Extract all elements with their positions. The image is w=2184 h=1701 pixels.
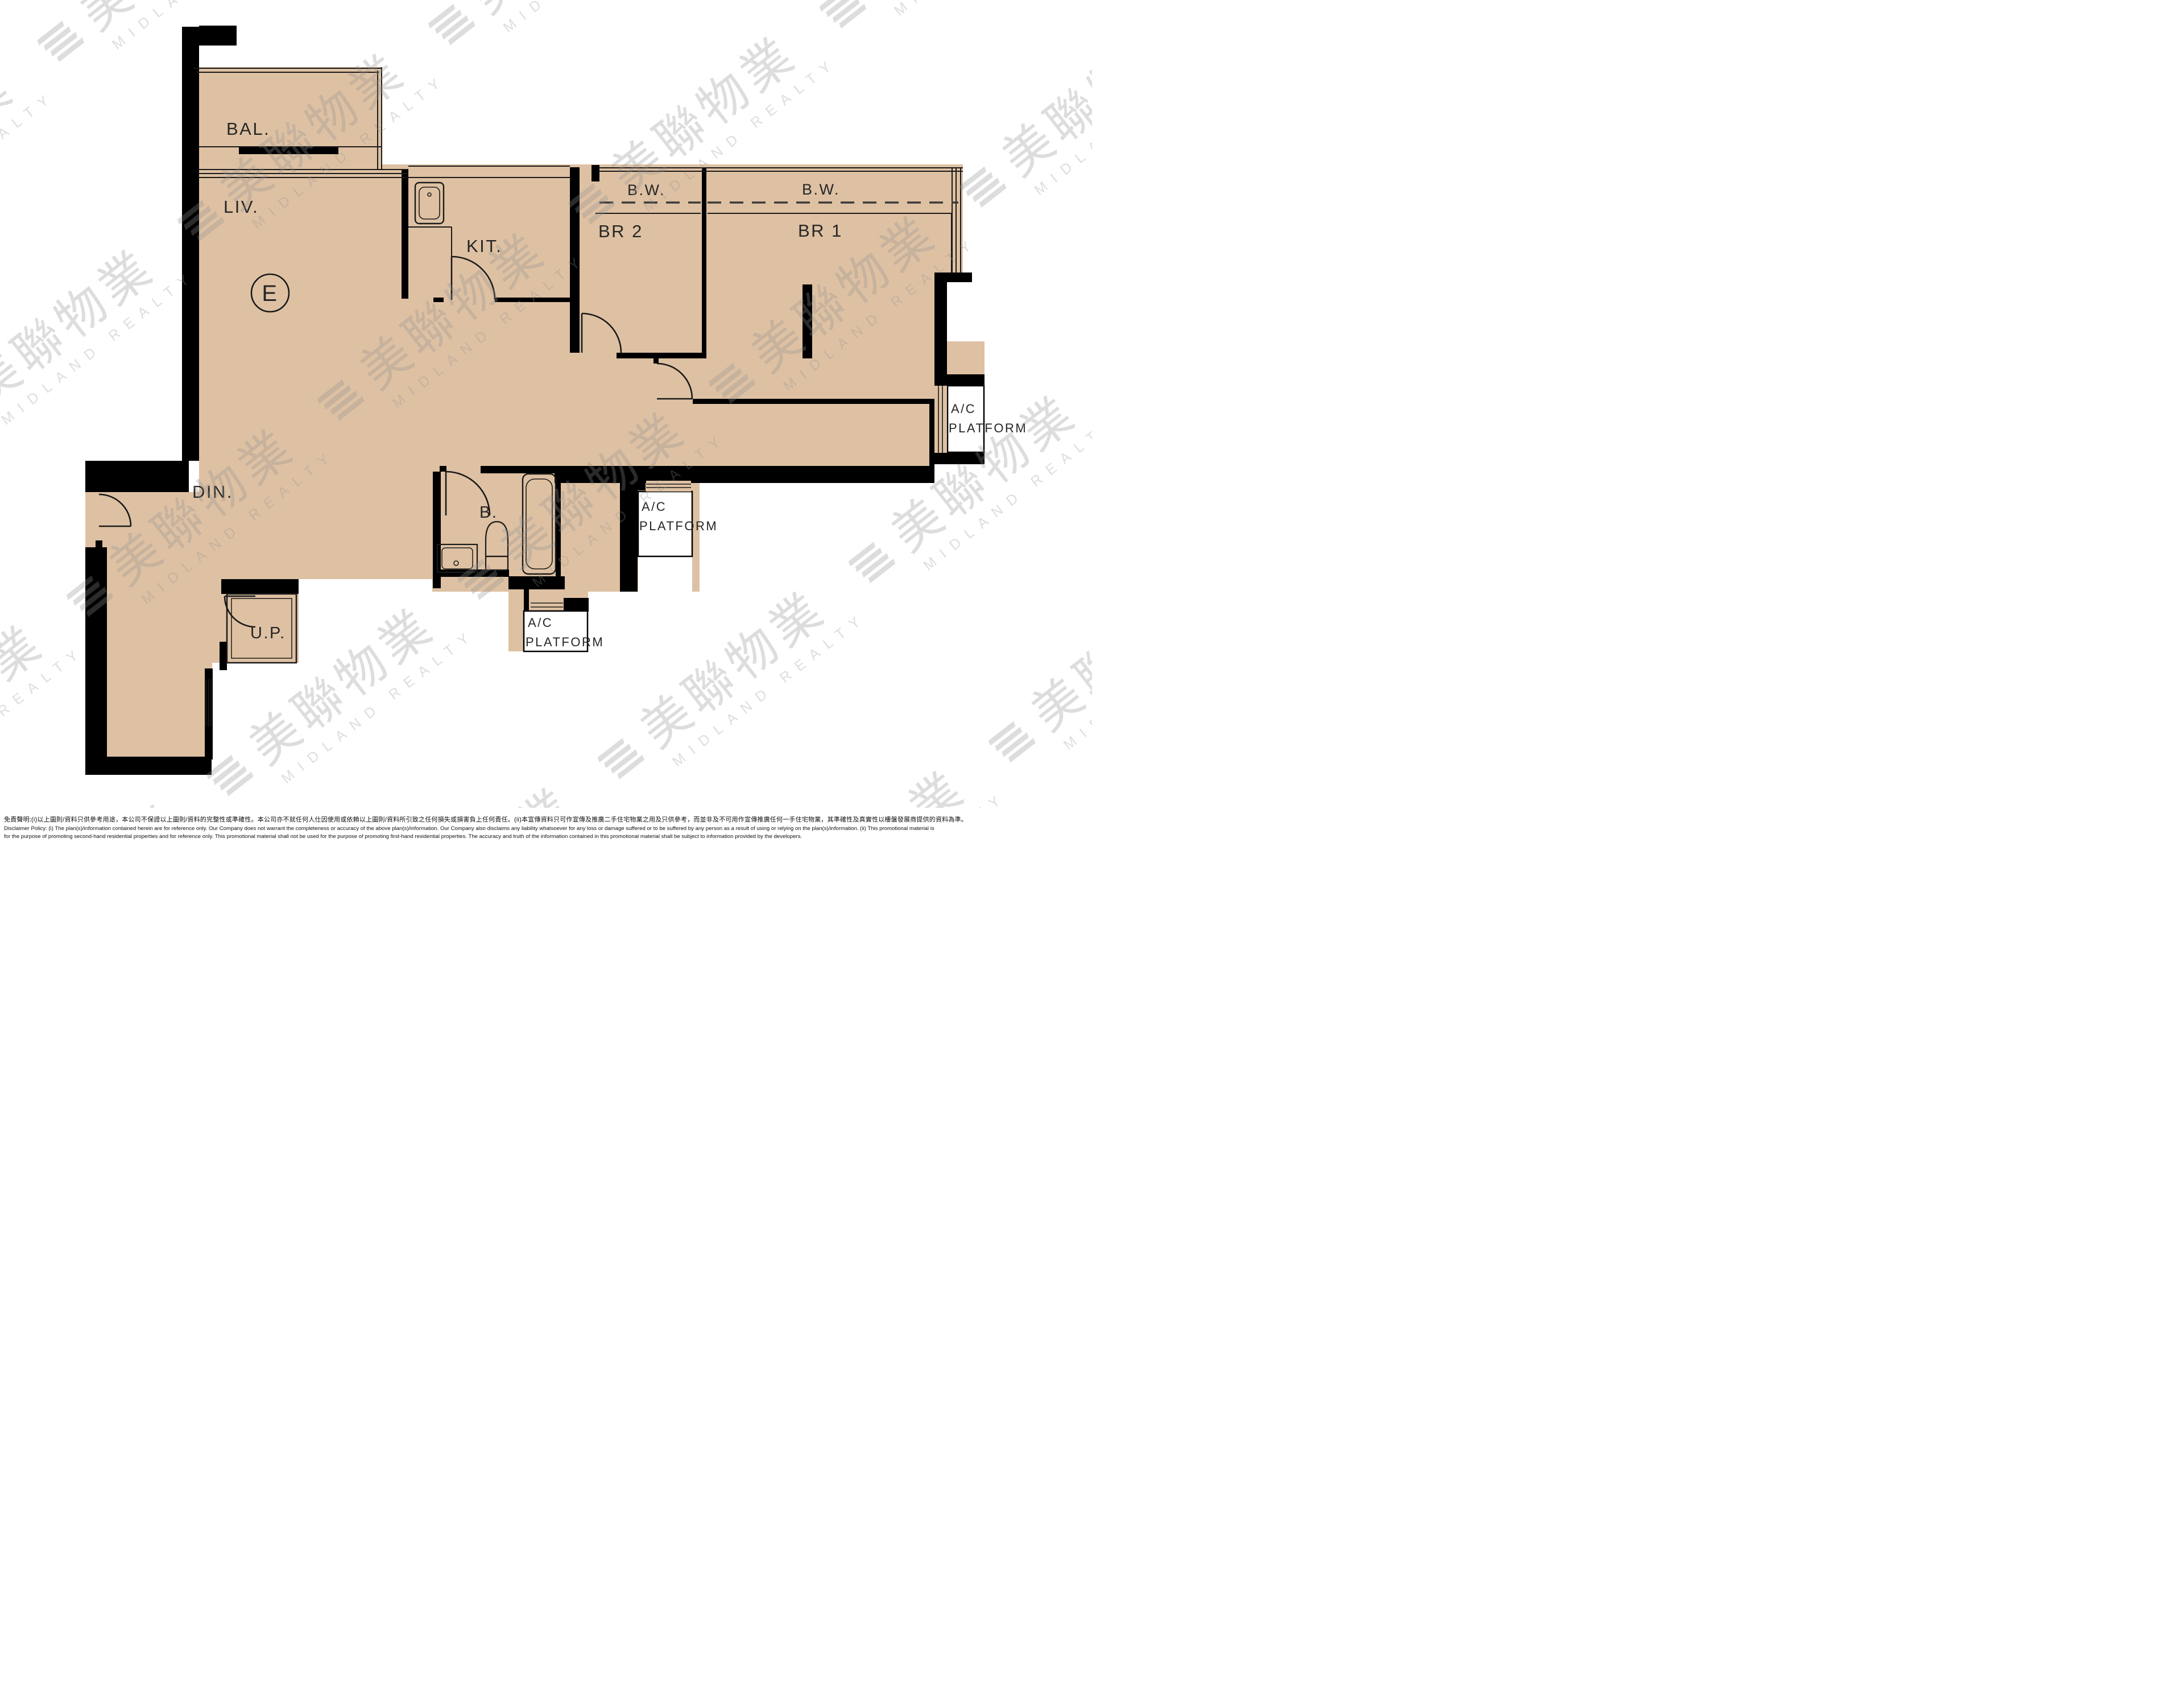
floorplan: BAL. LIV. KIT. DIN. B. BR 2 BR 1 B.W. B.…	[0, 0, 1092, 850]
watermark-overlay	[0, 0, 1092, 808]
disclaimer-en-line1: Disclaimer Policy: (i) The plan(s)/infor…	[4, 825, 1088, 833]
disclaimer-zh: 免責聲明:(i)以上圖則/資料只供參考用途，本公司不保證以上圖則/資料的完整性或…	[4, 815, 1088, 825]
disclaimer: 免責聲明:(i)以上圖則/資料只供參考用途，本公司不保證以上圖則/資料的完整性或…	[4, 815, 1088, 841]
disclaimer-en-line2: for the purpose of promoting second-hand…	[4, 833, 1088, 841]
floorplan-page: BAL. LIV. KIT. DIN. B. BR 2 BR 1 B.W. B.…	[0, 0, 1092, 850]
